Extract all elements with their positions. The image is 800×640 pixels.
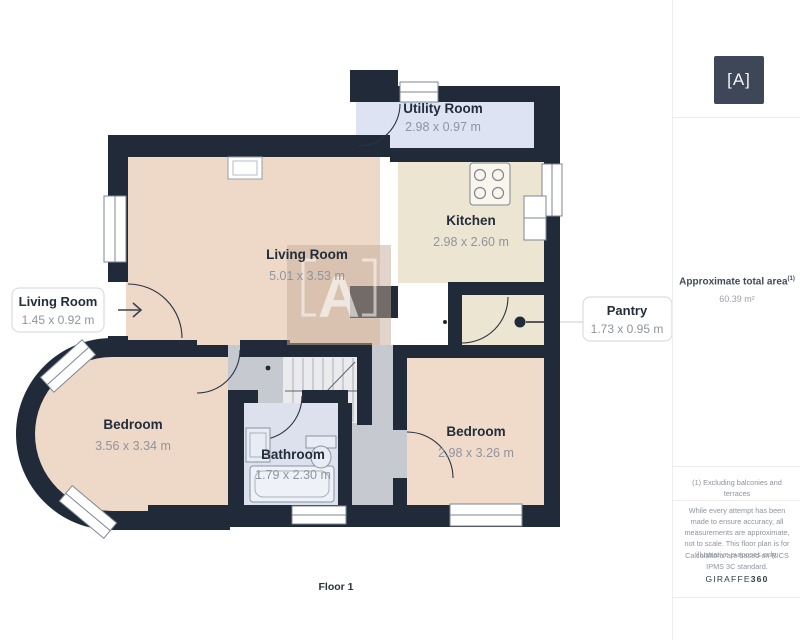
- window: [104, 196, 126, 262]
- room-dims-bedroom-right: 2.98 x 3.26 m: [438, 446, 514, 460]
- room-label-kitchen: Kitchen: [446, 213, 496, 228]
- svg-text:1.45 x 0.92 m: 1.45 x 0.92 m: [22, 313, 95, 327]
- room-dims-bedroom-left: 3.56 x 3.34 m: [95, 439, 171, 453]
- room-label-utility: Utility Room: [403, 101, 483, 116]
- brand-wordmark: GIRAFFE360: [673, 574, 800, 584]
- total-area-label: Approximate total area(1): [673, 276, 800, 287]
- stove-icon: [470, 163, 510, 205]
- total-area-value: 60.39 m²: [673, 294, 800, 304]
- pantry-floor: [462, 295, 544, 345]
- room-dims-utility: 2.98 x 0.97 m: [405, 120, 481, 134]
- giraffe-logo-icon: [A]: [714, 56, 764, 104]
- divider: [673, 597, 800, 598]
- room-dims-bathroom: 1.79 x 2.30 m: [255, 468, 331, 482]
- floorplan-svg: A Utility Room 2.98 x 0.97 m Kitchen 2.9…: [0, 0, 672, 640]
- standard-note: Calculations are based on RICS IPMS 3C s…: [681, 551, 793, 573]
- room-dims-kitchen: 2.98 x 2.60 m: [433, 235, 509, 249]
- total-area-footnote-marker: (1): [788, 276, 795, 282]
- floor-label: Floor 1: [0, 581, 672, 593]
- sink-unit-icon: [524, 196, 546, 240]
- floorplan-page: A Utility Room 2.98 x 0.97 m Kitchen 2.9…: [0, 0, 800, 640]
- logo-glyph: [A]: [727, 70, 751, 90]
- divider: [673, 466, 800, 467]
- svg-text:Pantry: Pantry: [607, 303, 648, 318]
- svg-text:1.73 x 0.95 m: 1.73 x 0.95 m: [591, 322, 664, 336]
- divider: [673, 117, 800, 118]
- callout-pantry: Pantry 1.73 x 0.95 m: [560, 297, 672, 341]
- footnote-text: (1) Excluding balconies and terraces: [681, 478, 793, 500]
- room-label-bedroom-right: Bedroom: [446, 424, 505, 439]
- callout-living-small: Living Room 1.45 x 0.92 m: [12, 288, 104, 332]
- window: [292, 506, 346, 524]
- total-area-block: Approximate total area(1) 60.39 m²: [673, 276, 800, 304]
- window: [450, 504, 522, 526]
- room-label-bathroom: Bathroom: [261, 447, 325, 462]
- sidebar: [A] Approximate total area(1) 60.39 m² (…: [672, 0, 800, 640]
- room-label-living: Living Room: [266, 247, 348, 262]
- fireplace-icon: [228, 157, 262, 179]
- room-dims-living: 5.01 x 3.53 m: [269, 269, 345, 283]
- room-label-bedroom-left: Bedroom: [103, 417, 162, 432]
- window: [400, 82, 438, 102]
- divider: [673, 500, 800, 501]
- svg-text:Living Room: Living Room: [19, 294, 98, 309]
